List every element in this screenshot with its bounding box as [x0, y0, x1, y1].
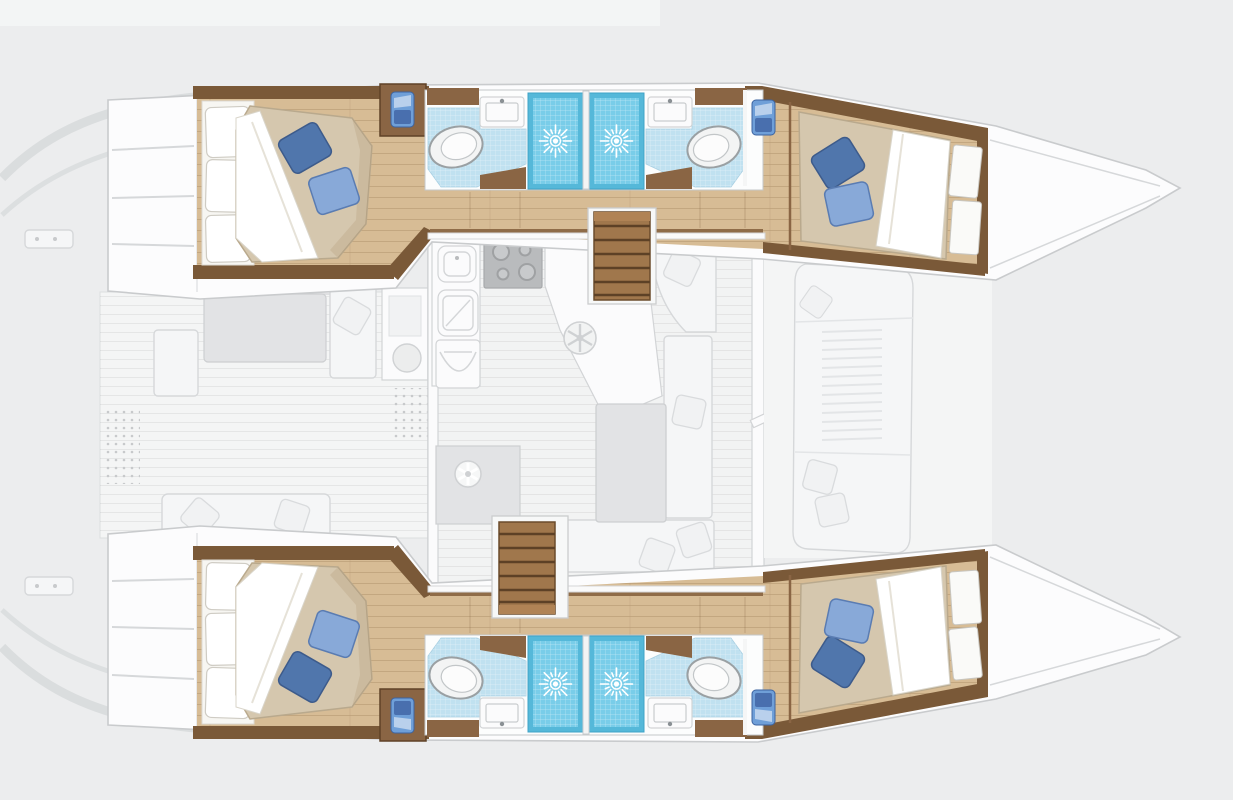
galley-sink-1 [438, 246, 476, 282]
saloon-forward-wall [752, 236, 764, 592]
stairs-starboard [492, 516, 568, 618]
side-deck-mat [104, 406, 140, 484]
catamaran-floor-plan-stage [0, 0, 1233, 800]
background-highlight [0, 0, 660, 26]
galley-cabinet-curved [436, 340, 480, 388]
stairs-port [588, 208, 656, 304]
saloon-table [596, 404, 666, 522]
foredeck-lounge [764, 240, 992, 558]
ghost-pillow [814, 492, 850, 528]
cockpit-wet-bar [382, 288, 428, 380]
catamaran-floor-plan [0, 0, 1233, 800]
ghost-pillow [671, 394, 707, 430]
cockpit-seat [154, 330, 198, 396]
aft-cockpit [100, 280, 438, 540]
stern-cleat [25, 577, 73, 595]
galley-sink-2 [438, 290, 478, 336]
floor-hatch-wheel [564, 322, 596, 354]
fridge-unit [436, 446, 520, 524]
stern-cleat [25, 230, 73, 248]
cockpit-table [204, 294, 326, 362]
stair-treads [499, 522, 555, 614]
